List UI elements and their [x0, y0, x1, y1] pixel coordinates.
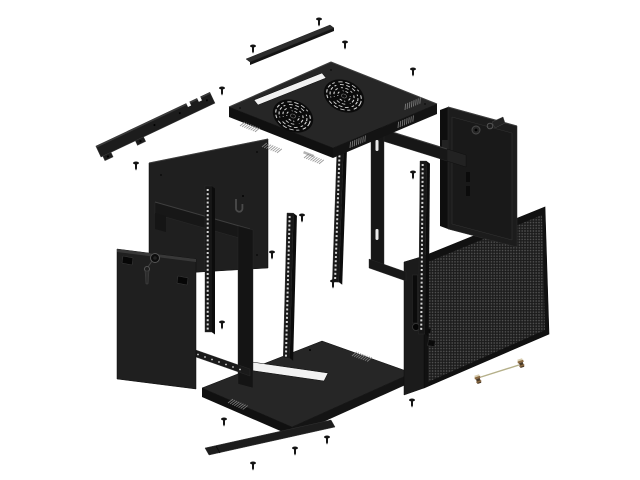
rack-rail	[205, 186, 215, 335]
side-panel-left	[117, 249, 196, 389]
exploded-cabinet-scene	[0, 0, 640, 480]
rack-rail	[418, 161, 430, 337]
product-image	[0, 0, 640, 480]
latch	[428, 340, 436, 347]
front-door	[440, 107, 517, 247]
handle-recess	[413, 275, 418, 323]
